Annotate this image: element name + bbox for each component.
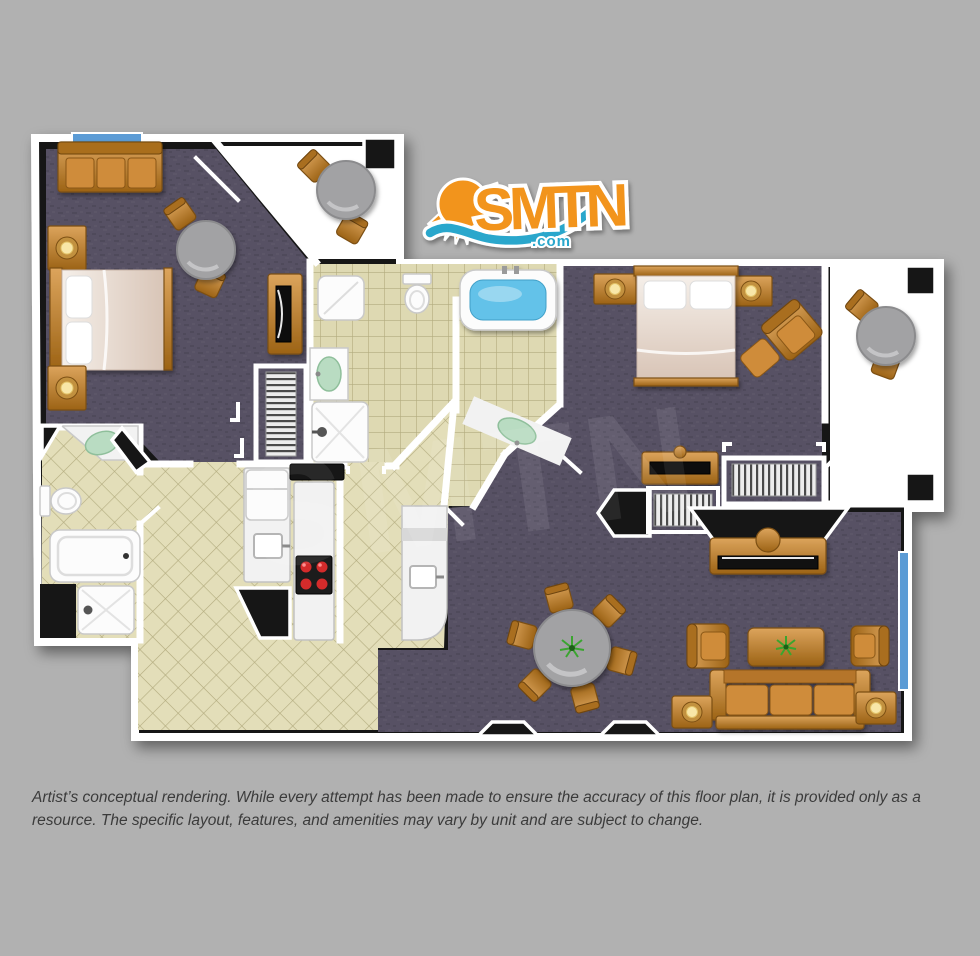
table-lamp <box>56 237 78 259</box>
toilet <box>40 486 81 516</box>
sofa <box>710 670 870 729</box>
balcony-2-column-top <box>906 266 935 295</box>
soaking-tub <box>460 266 556 330</box>
vanity-sink <box>310 348 348 400</box>
wall-fill <box>40 584 76 638</box>
nightstand <box>48 226 86 270</box>
dresser <box>58 142 162 192</box>
table-lamp <box>56 377 78 399</box>
table-lamp <box>605 279 625 299</box>
coffee-table <box>748 628 824 666</box>
nightstand <box>730 276 772 306</box>
toilet <box>403 274 431 313</box>
balcony-2-floor <box>830 266 936 504</box>
end-table <box>856 692 896 724</box>
table-lamp <box>682 702 702 722</box>
bed-2 <box>634 266 738 386</box>
living-room-window <box>899 552 909 690</box>
bed-1 <box>50 268 172 370</box>
balcony-1-column <box>364 138 396 170</box>
bathtub <box>50 530 140 582</box>
disclaimer-text: Artist’s conceptual rendering. While eve… <box>32 786 956 833</box>
armchair <box>851 626 889 666</box>
logo-tld-text: .com <box>532 233 571 250</box>
nightstand <box>48 366 86 410</box>
shower <box>78 586 134 634</box>
closet-rod <box>732 464 816 496</box>
media-center <box>690 508 848 574</box>
tv-armoire <box>268 274 302 354</box>
table-lamp <box>741 281 761 301</box>
nightstand <box>594 274 636 304</box>
armchair <box>687 624 729 668</box>
smtn-logo: SMTN .com <box>428 171 627 250</box>
table-lamp <box>866 698 886 718</box>
end-table <box>672 696 712 728</box>
balcony-2-column-bottom <box>906 473 935 502</box>
